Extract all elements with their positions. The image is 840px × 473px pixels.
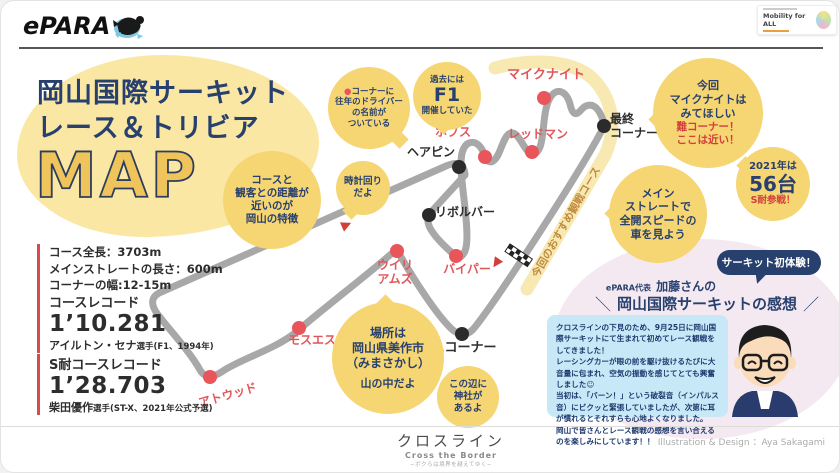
page-title-map-word: MAP — [35, 139, 199, 212]
spec-straight: メインストレートの長さ：600m — [49, 261, 247, 278]
bubble-driver-names-text: ●コーナーに 往年のドライバー の名前が ついている — [335, 87, 403, 130]
bubble-f1-big: F1 — [434, 86, 460, 106]
corner-dot-first — [455, 327, 469, 341]
corner-dot-revolver — [422, 208, 436, 222]
slash-right-decoration: ／ — [803, 291, 819, 315]
corner-dot-last — [597, 119, 611, 133]
holder-name: 柴田優作 — [49, 401, 93, 414]
corner-label-moss: モスエス — [288, 334, 336, 348]
page-title-line1: 岡山国際サーキット — [37, 71, 289, 110]
bubble-entries-2021: 2021年は 56台 S耐参戦！ — [736, 147, 810, 221]
brand-name-en: Cross the Border — [361, 451, 541, 460]
course-record-holder: アイルトン・セナ選手(F1、1994年) — [49, 337, 247, 353]
bubble-entries-big: 56台 — [749, 174, 797, 195]
corner-label-hairpin: ヘアピン — [407, 146, 455, 160]
course-record-label: コースレコード — [49, 292, 247, 311]
corner-label-piper: バイパー — [443, 263, 491, 277]
corner-dot-piper — [449, 249, 463, 263]
voice-heading: ＼ 岡山国際サーキットの感想 ／ — [595, 291, 819, 315]
holder-detail: 選手(ST-X、2021年公式予選) — [93, 404, 213, 414]
voice-heading-text: 岡山国際サーキットの感想 — [617, 293, 797, 314]
corner-dot-hairpin — [452, 160, 466, 174]
infographic-page: ePARA Mobility for ALL — [0, 0, 840, 473]
bubble-f1-bottom: 開催していた — [422, 106, 473, 117]
endurance-record-label: S耐コースレコード — [49, 354, 247, 373]
corner-label-mikeknight: マイクナイト — [507, 69, 585, 84]
corner-label-williams: ウイリ アムズ — [377, 259, 413, 287]
brand-name-jp: クロスライン — [361, 430, 541, 451]
corner-dot-williams — [390, 244, 404, 258]
bubble-mikeknight-navy-text: 今回 マイクナイトは みてほしい — [670, 79, 747, 120]
direction-arrow-back-straight — [340, 218, 353, 231]
bubble-driver-names: ●コーナーに 往年のドライバー の名前が ついている — [328, 67, 410, 149]
illustration-credit: Illustration & Design ：Aya Sakagami — [658, 435, 825, 448]
bubble-location-sub: 山の中だよ — [361, 377, 416, 391]
endurance-record-time: 1’28.703 — [49, 373, 247, 399]
bubble-mikeknight-reco: 今回 マイクナイトは みてほしい 難コーナー！ ここは近い！ — [653, 58, 763, 168]
bubble-f1-history: 過去には F1 開催していた — [413, 62, 481, 130]
bubble-distance: コースと 観客との距離が 近いのが 岡山の特徴 — [223, 151, 321, 249]
corner-label-revolver: リボルバー — [435, 206, 495, 220]
corner-dot-redman — [525, 145, 539, 159]
corner-label-first: 1コーナー — [435, 342, 496, 357]
direction-arrow-main-straight — [489, 256, 503, 270]
endurance-record-holder: 柴田優作選手(ST-X、2021年公式予選) — [49, 399, 247, 415]
bubble-entries-red: S耐参戦！ — [751, 195, 796, 207]
voice-comment-box: クロスラインの下見のため、9月25日に岡山国際サーキットにて生まれて初めてレース… — [547, 315, 728, 417]
brand-tagline: −ボクらは境界を越えてゆく− — [361, 460, 541, 468]
kato-avatar — [724, 317, 806, 417]
bubble-location: 場所は 岡山県美作市 （みまさかし） 山の中だよ — [332, 302, 444, 414]
bubble-clockwise: 時計回り だよ — [336, 161, 390, 215]
endurance-record: S耐コースレコード 1’28.703 柴田優作選手(ST-X、2021年公式予選… — [37, 354, 247, 415]
course-record: コースレコード 1’10.281 アイルトン・セナ選手(F1、1994年) — [37, 292, 247, 353]
crossline-brand: クロスライン Cross the Border −ボクらは境界を越えてゆく− — [361, 430, 541, 468]
course-record-time: 1’10.281 — [49, 311, 247, 337]
bubble-mikeknight-red-text: 難コーナー！ ここは近い！ — [677, 121, 740, 147]
course-specs: コース全長：3703m メインストレートの長さ：600m コーナーの幅:12-1… — [37, 244, 247, 294]
footer-divider — [1, 426, 840, 427]
spec-length: コース全長：3703m — [49, 244, 247, 261]
corner-dot-mikeknight — [537, 91, 551, 105]
slash-left-decoration: ＼ — [595, 291, 611, 315]
first-visit-badge: サーキット初体験！ — [717, 250, 821, 275]
holder-name: アイルトン・セナ — [49, 339, 136, 352]
corner-dot-hobbs — [478, 150, 492, 164]
holder-detail: 選手(F1、1994年) — [136, 342, 213, 352]
bubble-location-main: 場所は 岡山県美作市 （みまさかし） — [346, 326, 430, 371]
bubble-main-straight-view: メイン ストレートで 全開スピードの 車を見よう — [609, 165, 707, 263]
corner-label-redman: レッドマン — [508, 128, 568, 142]
bubble-shrine: この辺に 神社が あるよ — [437, 366, 499, 428]
